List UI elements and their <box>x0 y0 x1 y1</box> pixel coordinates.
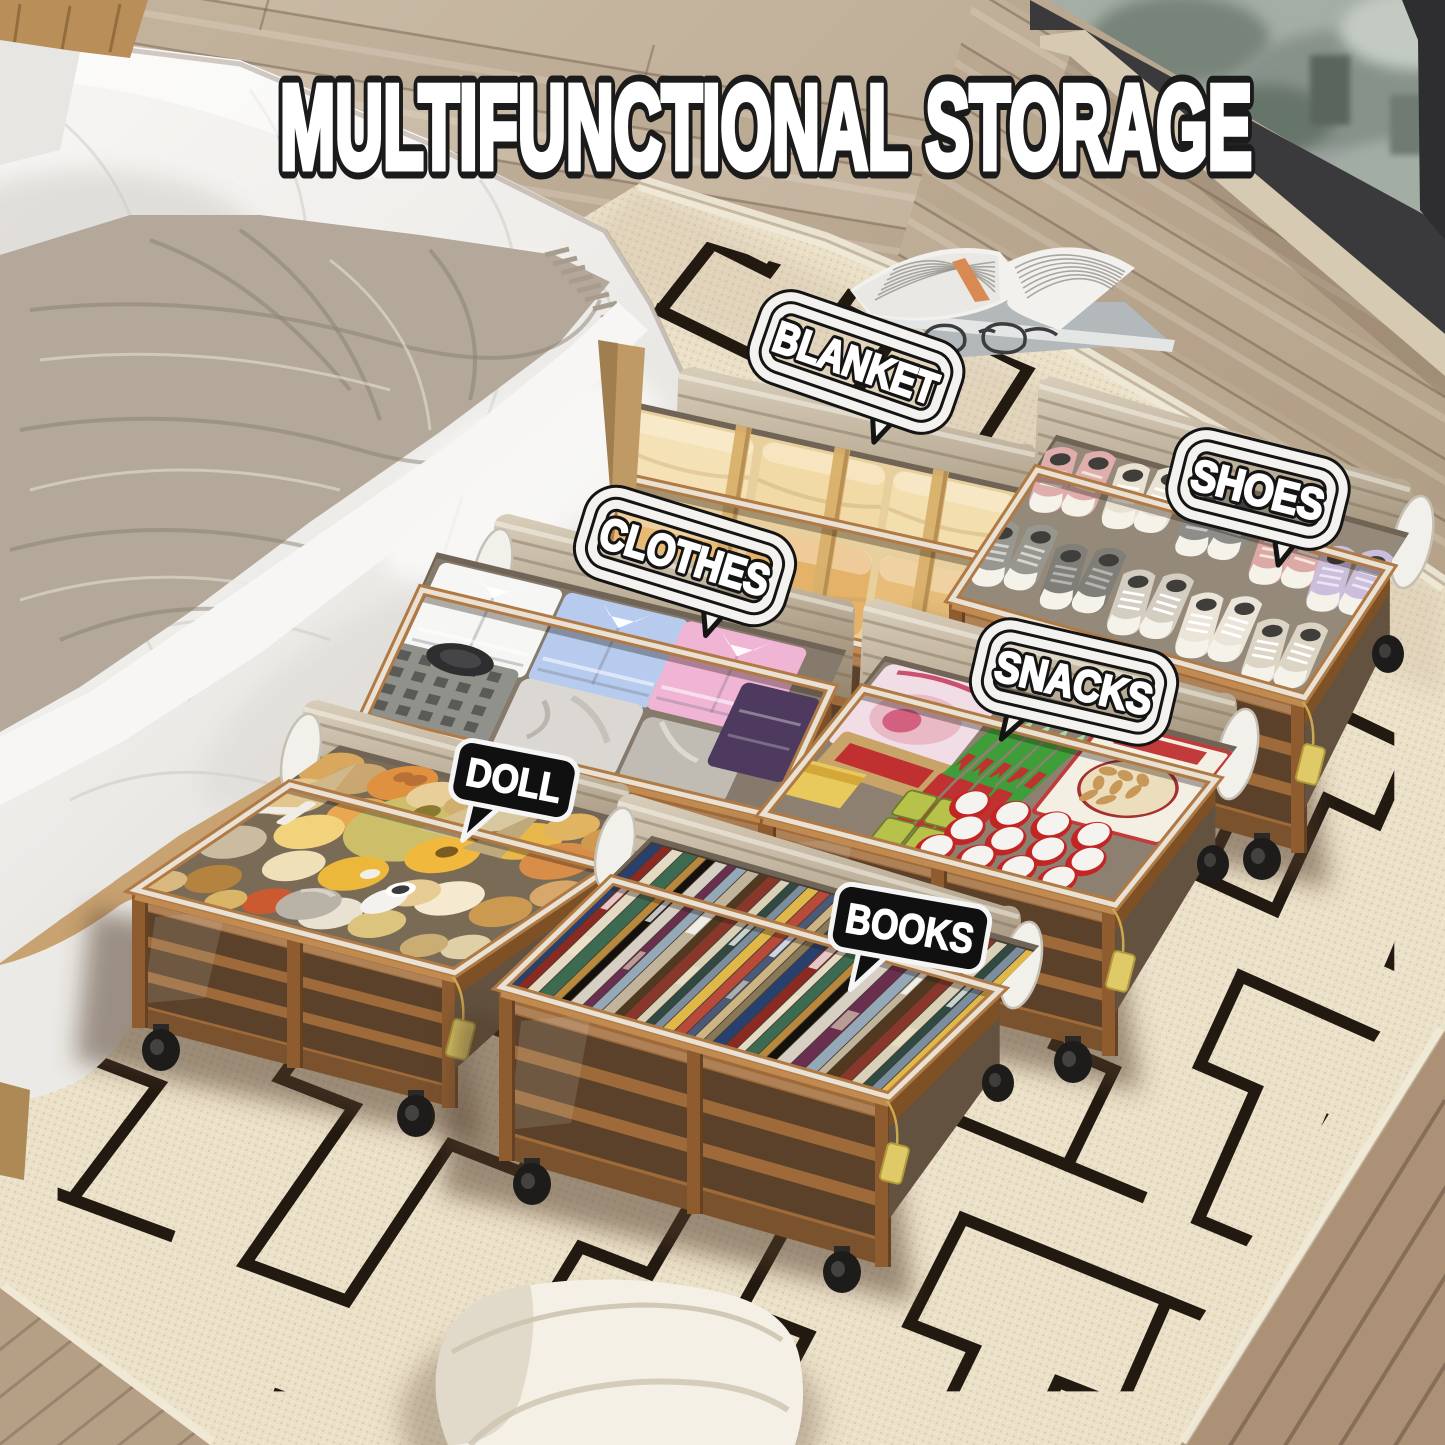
svg-text:MULTIFUNCTIONAL STORAGE: MULTIFUNCTIONAL STORAGE <box>280 61 1252 194</box>
